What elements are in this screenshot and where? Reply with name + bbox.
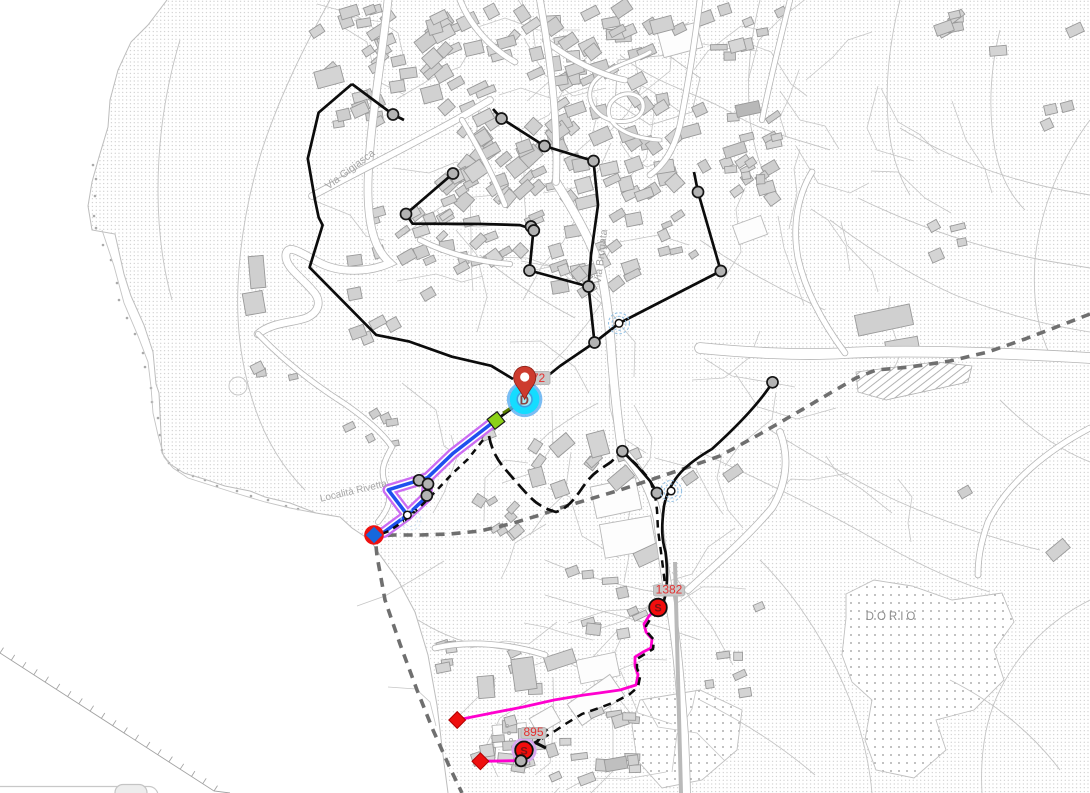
svg-text:895: 895 xyxy=(523,725,543,739)
svg-text:1382: 1382 xyxy=(656,583,683,597)
svg-text:DORIO: DORIO xyxy=(866,611,919,623)
svg-text:S: S xyxy=(654,603,661,615)
